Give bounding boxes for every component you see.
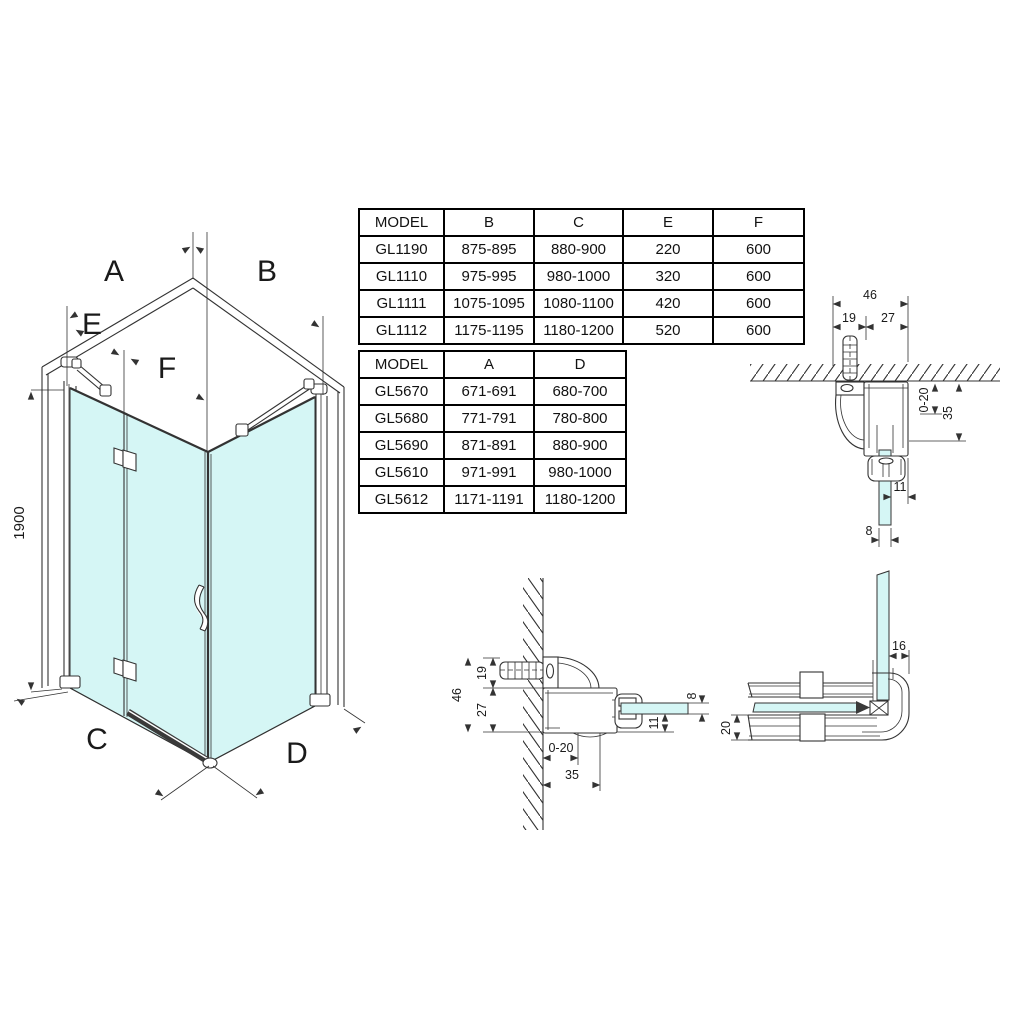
dim-27: 27: [475, 703, 489, 717]
table-row: GL5690 871-891 880-900: [359, 432, 626, 459]
value-cell: 1171-1191: [444, 486, 534, 513]
table-row: GL1111 1075-1095 1080-1100 420 600: [359, 290, 804, 317]
technical-diagram-page: A B E F C D 1900: [0, 0, 1024, 1024]
dim-8: 8: [685, 692, 699, 699]
model-cell: GL1190: [359, 236, 444, 263]
model-cell: GL5612: [359, 486, 444, 513]
dim-35: 35: [565, 768, 579, 782]
model-cell: GL5680: [359, 405, 444, 432]
dim-11: 11: [647, 716, 661, 729]
value-cell: 780-800: [534, 405, 626, 432]
value-cell: 975-995: [444, 263, 534, 290]
dim-46: 46: [450, 688, 464, 702]
clamp-block-lower: [800, 714, 825, 741]
table-row: GL1112 1175-1195 1180-1200 520 600: [359, 317, 804, 344]
value-cell: 875-895: [444, 236, 534, 263]
table-row: GL1110 975-995 980-1000 320 600: [359, 263, 804, 290]
value-cell: 971-991: [444, 459, 534, 486]
value-cell: 880-900: [534, 432, 626, 459]
wall-anchor-dowel: [843, 336, 857, 380]
value-cell: 320: [623, 263, 713, 290]
value-cell: 600: [713, 236, 804, 263]
model-cell: GL5690: [359, 432, 444, 459]
header-cell: E: [623, 209, 713, 236]
table-row: GL5610 971-991 980-1000: [359, 459, 626, 486]
dim-19: 19: [842, 311, 856, 325]
dim-46: 46: [863, 288, 877, 302]
side-glass-panel: [208, 397, 315, 763]
table-row: GL5670 671-691 680-700: [359, 378, 626, 405]
header-cell: A: [444, 351, 534, 378]
value-cell: 220: [623, 236, 713, 263]
value-cell: 680-700: [534, 378, 626, 405]
wall-hatch: [523, 578, 543, 830]
table-header-row: MODEL B C E F: [359, 209, 804, 236]
size-table-ad: MODEL A D GL5670 671-691 680-700 GL5680 …: [358, 350, 627, 514]
dim-35: 35: [941, 406, 955, 420]
value-cell: 871-891: [444, 432, 534, 459]
front-door-glass-panel: [70, 388, 208, 763]
model-cell: GL5670: [359, 378, 444, 405]
dim-label-height-1900: 1900: [11, 506, 28, 539]
header-cell: MODEL: [359, 209, 444, 236]
dim-label-d: D: [286, 737, 308, 770]
horizontal-glass-section: [753, 703, 858, 712]
dim-20: 20: [719, 721, 733, 735]
table-row: GL5680 771-791 780-800: [359, 405, 626, 432]
dim-label-e: E: [82, 308, 102, 341]
header-cell: C: [534, 209, 623, 236]
value-cell: 1175-1195: [444, 317, 534, 344]
dim-label-f: F: [158, 352, 176, 385]
value-cell: 600: [713, 263, 804, 290]
clamp-block-upper: [800, 672, 823, 698]
value-cell: 771-791: [444, 405, 534, 432]
table-row: GL1190 875-895 880-900 220 600: [359, 236, 804, 263]
value-cell: 1180-1200: [534, 317, 623, 344]
glass-section: [621, 703, 688, 714]
header-cell: B: [444, 209, 534, 236]
value-cell: 1080-1100: [534, 290, 623, 317]
value-cell: 1075-1095: [444, 290, 534, 317]
wall-profile-body: [543, 688, 617, 733]
wall-profile-body: [864, 382, 908, 456]
header-cell: F: [713, 209, 804, 236]
model-cell: GL1111: [359, 290, 444, 317]
value-cell: 980-1000: [534, 263, 623, 290]
dim-16: 16: [892, 639, 906, 653]
value-cell: 600: [713, 290, 804, 317]
wall-hatch: [750, 364, 1000, 381]
model-cell: GL5610: [359, 459, 444, 486]
dim-adjust-0-20: 0-20: [917, 387, 931, 412]
value-cell: 880-900: [534, 236, 623, 263]
dim-19: 19: [475, 666, 489, 680]
value-cell: 1180-1200: [534, 486, 626, 513]
value-cell: 420: [623, 290, 713, 317]
isometric-enclosure-view: A B E F C D 1900: [11, 232, 365, 800]
value-cell: 520: [623, 317, 713, 344]
vertical-glass-section: [877, 571, 889, 700]
dim-adjust-0-20: 0-20: [548, 741, 573, 755]
value-cell: 600: [713, 317, 804, 344]
value-cell: 980-1000: [534, 459, 626, 486]
dim-11: 11: [894, 480, 907, 494]
wall-anchor-dowel: [500, 662, 544, 679]
value-cell: 671-691: [444, 378, 534, 405]
dim-label-a: A: [104, 255, 124, 288]
dim-27: 27: [881, 311, 895, 325]
dim-8: 8: [866, 524, 873, 538]
dim-label-c: C: [86, 723, 108, 756]
detail-corner-joint: 16 20: [719, 571, 909, 741]
model-cell: GL1112: [359, 317, 444, 344]
table-row: GL5612 1171-1191 1180-1200: [359, 486, 626, 513]
detail-wall-profile-side: 19 46 27 0-20 35 8 11: [450, 578, 709, 830]
glass-insert-arrow: [856, 701, 870, 714]
dim-label-b: B: [257, 255, 277, 288]
header-cell: MODEL: [359, 351, 444, 378]
table-header-row: MODEL A D: [359, 351, 626, 378]
header-cell: D: [534, 351, 626, 378]
model-cell: GL1110: [359, 263, 444, 290]
size-table-bcef: MODEL B C E F GL1190 875-895 880-900 220…: [358, 208, 805, 345]
